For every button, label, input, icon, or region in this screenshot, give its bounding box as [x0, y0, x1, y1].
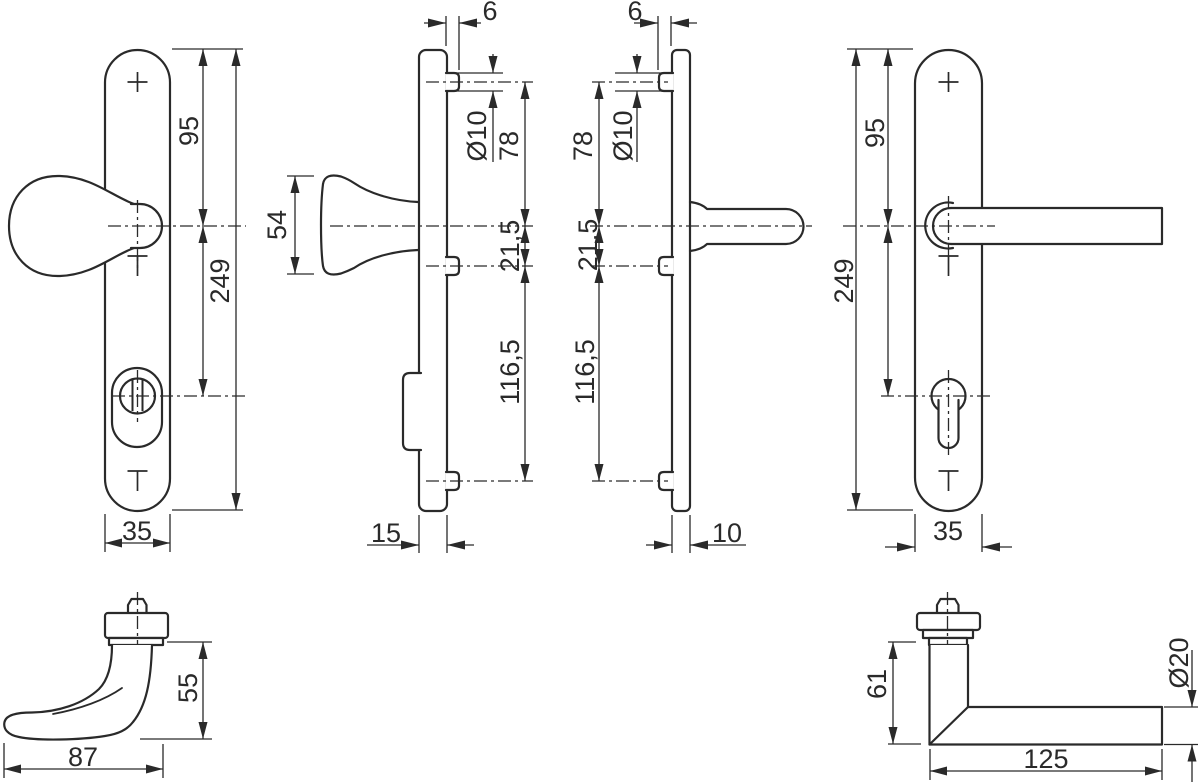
dim-label-116-5: 116,5	[495, 339, 525, 405]
drawing-svg: 95 249 35 6 Ø10 78 21,5 116,5 15 54	[0, 0, 1200, 782]
dim-label-35: 35	[933, 516, 963, 546]
view-exterior-plate-front: 95 249 35	[9, 49, 246, 552]
view-exterior-plate-side: 6 Ø10 78 21,5 116,5 15 54	[262, 0, 533, 553]
dim-label-d10: Ø10	[462, 110, 492, 161]
knob-side-profile	[321, 175, 418, 274]
dim-label-15: 15	[371, 518, 401, 548]
view-interior-plate-front: 95 249 35	[829, 49, 1162, 552]
dim-label-95: 95	[860, 118, 890, 148]
dim-label-d20: Ø20	[1164, 637, 1194, 688]
dim-label-87: 87	[68, 742, 98, 772]
dim-label-78: 78	[494, 131, 524, 161]
dim-label-125: 125	[1023, 744, 1068, 774]
dim-label-d10: Ø10	[608, 110, 638, 161]
backplate-side-outline	[419, 50, 447, 511]
technical-drawing: 95 249 35 6 Ø10 78 21,5 116,5 15 54	[0, 0, 1200, 782]
dimension-lines	[287, 16, 525, 553]
dim-label-21-5: 21,5	[495, 220, 525, 273]
dim-label-10: 10	[712, 518, 742, 548]
backplate-side-outline	[672, 50, 690, 511]
detail-knob: 55 87	[4, 592, 212, 778]
dim-label-78: 78	[568, 131, 598, 161]
detail-lever: 61 125 Ø20	[862, 592, 1198, 782]
knob-body	[4, 645, 152, 740]
cylinder-cover-bump	[403, 373, 421, 450]
lever-body	[930, 645, 1163, 745]
knob-rose	[105, 613, 168, 638]
dim-label-116-5: 116,5	[570, 339, 600, 405]
dim-label-6: 6	[482, 0, 497, 26]
dim-label-54: 54	[262, 210, 292, 240]
dim-label-61: 61	[862, 669, 892, 699]
view-interior-plate-side: 6 Ø10 78 21,5 116,5 10	[568, 0, 812, 553]
dim-label-55: 55	[173, 673, 203, 703]
dim-label-249: 249	[829, 258, 859, 303]
lever-rose	[917, 613, 980, 630]
dim-label-95: 95	[174, 116, 204, 146]
dim-label-21-5: 21,5	[573, 219, 603, 272]
dim-label-6: 6	[627, 0, 642, 26]
dim-label-249: 249	[205, 258, 235, 303]
dim-label-35: 35	[122, 516, 152, 546]
knob-rose-lip	[109, 638, 163, 645]
